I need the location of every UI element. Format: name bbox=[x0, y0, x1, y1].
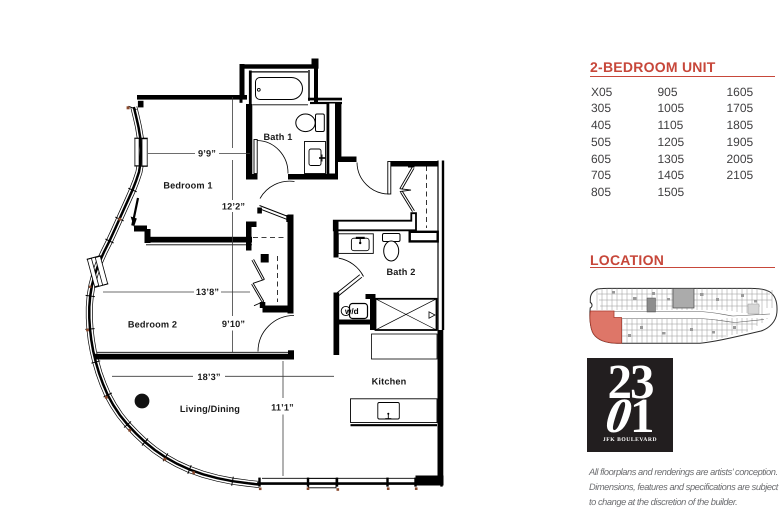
svg-text:Kitchen: Kitchen bbox=[372, 376, 407, 386]
svg-text:Living/Dining: Living/Dining bbox=[180, 404, 240, 414]
svg-text:Bedroom 1: Bedroom 1 bbox=[163, 181, 212, 191]
svg-text:13’8”: 13’8” bbox=[196, 287, 219, 297]
svg-text:9’9”: 9’9” bbox=[198, 149, 216, 159]
svg-text:9’10”: 9’10” bbox=[222, 319, 245, 329]
svg-text:12’2”: 12’2” bbox=[222, 202, 245, 212]
svg-text:Bath 2: Bath 2 bbox=[387, 267, 416, 277]
svg-text:Bath 1: Bath 1 bbox=[264, 132, 293, 142]
svg-text:18’3”: 18’3” bbox=[197, 372, 220, 382]
svg-text:11’1”: 11’1” bbox=[271, 403, 294, 413]
svg-text:w/d: w/d bbox=[344, 307, 359, 316]
svg-text:Bedroom 2: Bedroom 2 bbox=[128, 320, 177, 330]
